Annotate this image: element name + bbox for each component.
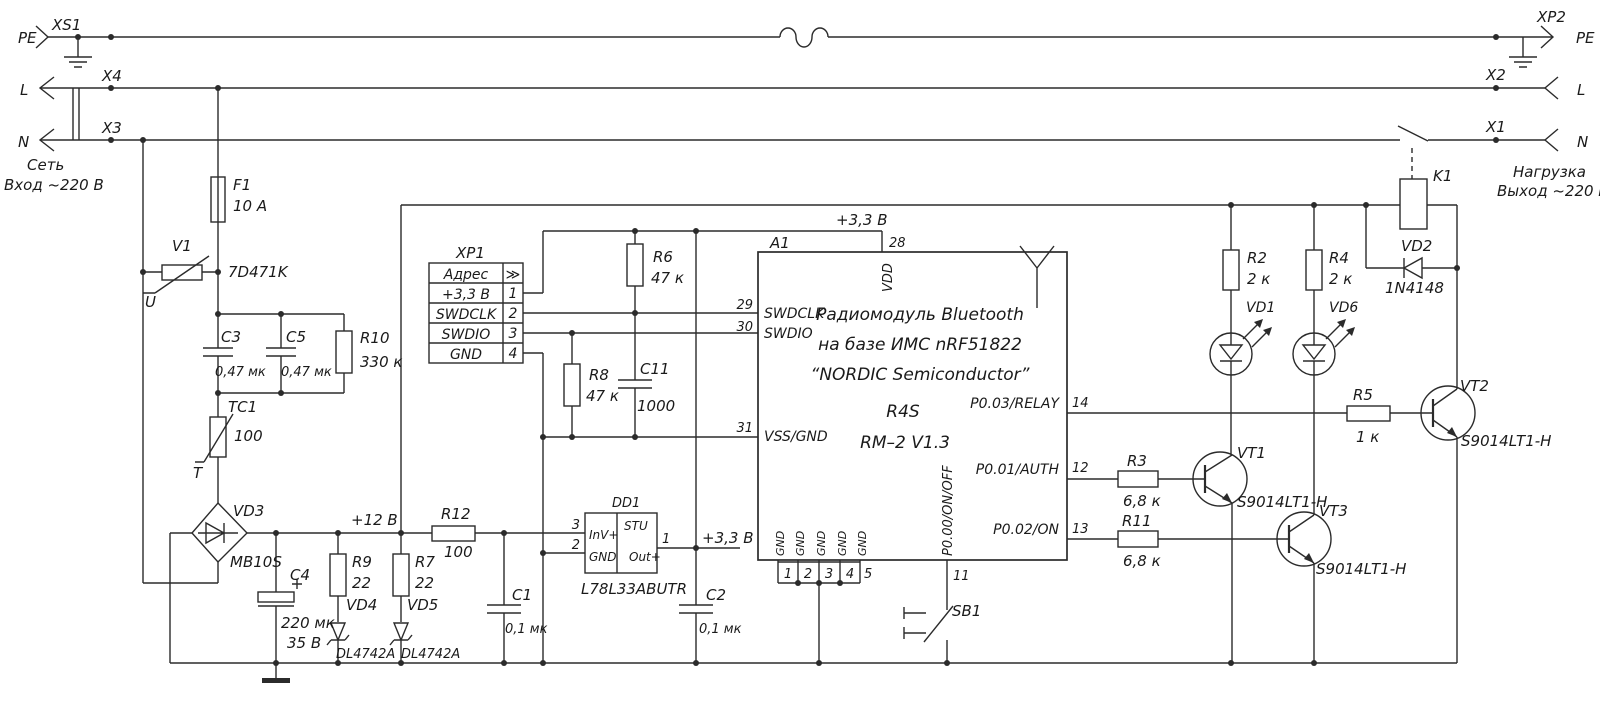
label-r4-ref: R4 [1329, 249, 1349, 267]
label-c3-value: 0,47 мк [215, 365, 266, 380]
led-rays-icon [1243, 321, 1270, 347]
wire-3v3-rail [543, 231, 882, 252]
label-dd1-part: L78L33ABUTR [581, 580, 687, 598]
label-r9-value: 22 [352, 574, 371, 592]
label-x3: X3 [101, 119, 122, 137]
xp1-row-pin: 2 [509, 306, 518, 322]
label-pin30-num: 30 [736, 320, 753, 335]
label-xp2: XP2 [1536, 8, 1566, 26]
xp1-row-pin: 3 [509, 326, 518, 342]
label-l-left: L [20, 81, 28, 99]
relay-circuit [1366, 179, 1457, 278]
button-sb1 [904, 606, 953, 642]
label-dd1-cell: STU [624, 519, 648, 533]
label-xs1: XS1 [51, 16, 81, 34]
label-pe-right: PE [1576, 29, 1595, 47]
thermistor-tc1-symbol [210, 417, 226, 457]
label-c4-ref: C4 [290, 566, 310, 584]
module-revision: RM–2 V1.3 [860, 433, 950, 453]
label-dd1-ref: DD1 [612, 496, 640, 511]
label-vt2-ref: VT2 [1460, 377, 1489, 395]
label-v1-electrode: U [145, 293, 156, 311]
net-pe-line [36, 26, 1553, 67]
resistor-r8-symbol [564, 364, 580, 406]
label-12v-rail: +12 В [351, 511, 398, 529]
antenna-icon [1020, 246, 1054, 308]
label-c1-ref: C1 [512, 586, 532, 604]
label-pin29-num: 29 [736, 298, 753, 313]
label-c2-value: 0,1 мк [699, 622, 742, 637]
label-n-right: N [1577, 133, 1588, 151]
swd-circuit [429, 231, 882, 663]
label-c5-ref: C5 [286, 328, 306, 346]
plug-arrow-icon [36, 26, 48, 48]
label-dd1-pin-in: InV+ [589, 528, 618, 542]
label-v1-value: 7D471K [228, 263, 289, 281]
schematic-page: XS1 PE X4 L X3 N Сеть Вход ~220 В XP2 PE… [0, 0, 1600, 706]
earth-icon [262, 678, 290, 683]
label-gnd-pin: GND [815, 531, 828, 556]
label-vd4-value: DL4742A [336, 647, 395, 662]
label-vd4-ref: VD4 [346, 596, 377, 614]
wire-gnd-drop [523, 353, 543, 663]
label-xp1-ref: XP1 [455, 244, 485, 262]
label-vd5-value: DL4742A [401, 647, 460, 662]
label-c2-ref: C2 [706, 586, 726, 604]
socket-arrow-icon [1545, 77, 1558, 99]
socket-arrow-icon [1545, 129, 1558, 151]
xp1-row-label: GND [450, 347, 482, 363]
label-input-caption1: Сеть [27, 156, 64, 174]
label-pin12-num: 12 [1072, 461, 1089, 476]
label-3v3-module: +3,3 В [836, 211, 887, 229]
label-gnd-num: 1 [784, 567, 792, 582]
xp1-row-label: +3,3 В [442, 287, 490, 303]
labels: XS1 PE X4 L X3 N Сеть Вход ~220 В XP2 PE… [4, 8, 1600, 662]
label-r6-ref: R6 [653, 248, 673, 266]
label-x4: X4 [101, 67, 122, 85]
label-dd1-pin-out: Out+ [629, 550, 661, 564]
label-gnd-pin: GND [774, 531, 787, 556]
cap-c5-symbol [266, 314, 296, 393]
label-r11-value: 6,8 к [1123, 552, 1161, 570]
label-pin-auth: P0.01/AUTH [976, 462, 1060, 478]
label-pin31-num: 31 [736, 421, 753, 436]
label-vd2-ref: VD2 [1401, 237, 1432, 255]
xp1-row-pin: 4 [509, 346, 518, 362]
label-r12-value: 100 [444, 543, 473, 561]
label-vd5-ref: VD5 [407, 596, 438, 614]
label-tc1-value: 100 [234, 427, 263, 445]
label-c1-value: 0,1 мк [505, 622, 548, 637]
label-vt3-value: S9014LT1-H [1316, 560, 1406, 578]
label-vdd: VDD [881, 263, 896, 292]
label-input-caption2: Вход ~220 В [4, 176, 104, 194]
label-f1-ref: F1 [233, 176, 251, 194]
label-r7-value: 22 [415, 574, 434, 592]
label-r3-value: 6,8 к [1123, 492, 1161, 510]
resistor-r11-symbol [1118, 531, 1158, 547]
label-dd1-num-out: 1 [662, 532, 670, 547]
label-x1: X1 [1485, 118, 1506, 136]
label-c11-ref: C11 [640, 360, 670, 378]
xp1-row-label: Адрес [443, 267, 489, 283]
label-r2-value: 2 к [1247, 270, 1270, 288]
pushbutton-icon [904, 606, 953, 642]
label-output-caption2: Выход ~220 В [1497, 182, 1600, 200]
label-r3-ref: R3 [1127, 452, 1147, 470]
module-title-line1: Радиомодуль Bluetooth [816, 305, 1024, 325]
net-n-line [40, 126, 1558, 179]
wire-break-icon [780, 28, 828, 47]
label-r6-value: 47 к [651, 269, 684, 287]
resistor-r6-symbol [627, 244, 643, 286]
label-vd6-ref: VD6 [1329, 300, 1358, 316]
label-r8-ref: R8 [589, 366, 609, 384]
label-vd3-ref: VD3 [233, 502, 264, 520]
earth-icon [1509, 37, 1537, 67]
module-model: R4S [886, 402, 920, 422]
resistor-r3-symbol [1118, 471, 1158, 487]
label-pin-onoff: P0.00/ON/OFF [941, 465, 956, 556]
label-output-caption1: Нагрузка [1513, 163, 1586, 181]
label-pe-left: PE [18, 29, 37, 47]
label-tc1-ref: TC1 [228, 398, 257, 416]
label-vt3-ref: VT3 [1319, 502, 1348, 520]
resistor-r12-symbol [432, 526, 475, 541]
label-c3-ref: C3 [221, 328, 241, 346]
xp1-row-pin: 1 [509, 286, 518, 302]
cap-c4-symbol [258, 592, 294, 602]
label-pin28-num: 28 [889, 236, 906, 251]
module-title-line2: на базе ИМС nRF51822 [818, 335, 1022, 355]
label-c4-voltage: 35 В [287, 634, 321, 652]
label-vd1-ref: VD1 [1246, 300, 1275, 316]
resistor-r4-symbol [1306, 250, 1322, 290]
label-v1-ref: V1 [172, 237, 192, 255]
label-c5-value: 0,47 мк [281, 365, 332, 380]
label-3v3-out: +3,3 В [702, 529, 753, 547]
label-pin-vss: VSS/GND [764, 429, 828, 445]
led-rays-icon [1326, 321, 1353, 347]
label-vt1-value: S9014LT1-H [1237, 493, 1327, 511]
label-r10-value: 330 к [360, 353, 402, 371]
label-a1-ref: A1 [769, 234, 790, 252]
xp1-row-label: SWDCLK [436, 307, 498, 323]
label-r10-ref: R10 [360, 329, 390, 347]
label-dd1-num-in: 3 [572, 518, 580, 533]
label-r7-ref: R7 [415, 553, 435, 571]
label-gnd-num: 2 [804, 567, 812, 582]
label-n-left: N [18, 133, 29, 151]
label-gnd-pin: GND [836, 531, 849, 556]
label-gnd-pin: GND [794, 531, 807, 556]
xp1-row-label: SWDIO [442, 327, 491, 343]
label-sb1-ref: SB1 [952, 602, 981, 620]
relay-contact-icon [1398, 126, 1428, 141]
label-pin-relay: P0.03/RELAY [970, 396, 1060, 412]
schematic-canvas: XS1 PE X4 L X3 N Сеть Вход ~220 В XP2 PE… [0, 0, 1600, 706]
resistor-r9-symbol [330, 554, 346, 596]
resistor-r2-symbol [1223, 250, 1239, 290]
label-r5-value: 1 к [1356, 428, 1379, 446]
label-dd1-num-gnd: 2 [572, 538, 580, 553]
label-x2: X2 [1485, 66, 1506, 84]
label-vd3-value: MB10S [230, 553, 282, 571]
cap-c3-symbol [203, 348, 233, 356]
resistor-r10-symbol [336, 331, 352, 373]
earth-icon [64, 37, 92, 67]
label-k1-ref: K1 [1433, 167, 1452, 185]
label-r8-value: 47 к [586, 387, 619, 405]
label-vd2-value: 1N4148 [1385, 279, 1444, 297]
label-pin11-num: 11 [953, 569, 970, 584]
module-title-line3: “NORDIC Semiconductor” [811, 365, 1030, 385]
label-gnd-num: 3 [825, 567, 833, 582]
label-dd1-pin-gnd: GND [589, 550, 617, 564]
label-r11-ref: R11 [1122, 512, 1152, 530]
label-r9-ref: R9 [352, 553, 372, 571]
label-gnd-num: 5 [864, 567, 872, 582]
label-r4-value: 2 к [1329, 270, 1352, 288]
label-gnd-pin: GND [856, 531, 869, 556]
label-pin14-num: 14 [1072, 396, 1089, 411]
label-pin-swdio: SWDIO [764, 326, 813, 342]
label-vt1-ref: VT1 [1237, 444, 1266, 462]
label-pin13-num: 13 [1072, 522, 1089, 537]
label-r12-ref: R12 [441, 505, 471, 523]
label-c11-value: 1000 [637, 397, 675, 415]
label-f1-value: 10 A [233, 197, 267, 215]
label-r2-ref: R2 [1247, 249, 1267, 267]
label-l-right: L [1577, 81, 1585, 99]
label-tc1-electrode: T [193, 464, 204, 482]
net-l-line [40, 77, 1558, 99]
twisted-pair-icon [73, 88, 79, 140]
varistor-v1-symbol [162, 265, 202, 280]
label-c4-value: 220 мк [281, 614, 335, 632]
label-pin-on: P0.02/ON [993, 522, 1059, 538]
resistor-r7-symbol [393, 554, 409, 596]
label-gnd-num: 4 [846, 567, 854, 582]
label-r5-ref: R5 [1353, 386, 1373, 404]
resistor-r5-symbol [1347, 406, 1390, 421]
relay-coil-k1-symbol [1400, 179, 1427, 229]
xp1-row-pin: ≫ [506, 267, 521, 283]
label-vt2-value: S9014LT1-H [1461, 432, 1551, 450]
